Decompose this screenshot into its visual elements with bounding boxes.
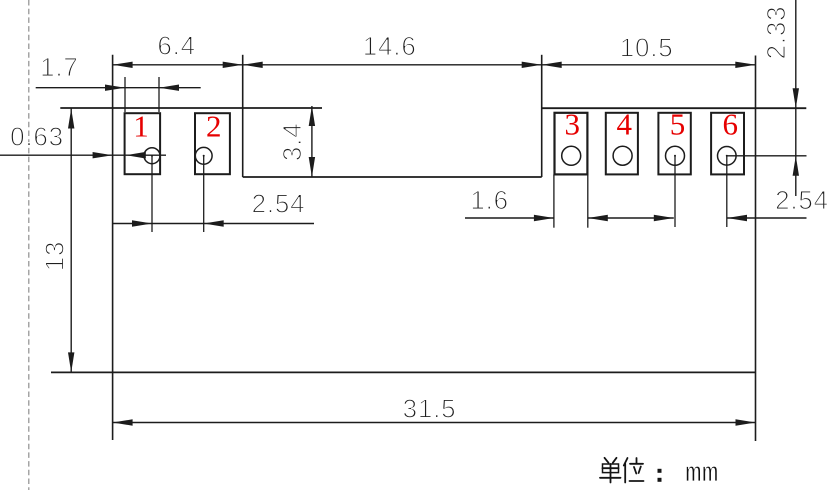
svg-text:4: 4 <box>616 107 632 142</box>
svg-text:13: 13 <box>40 241 70 272</box>
svg-text:14.6: 14.6 <box>363 31 417 61</box>
svg-text:2.54: 2.54 <box>252 189 306 219</box>
svg-text:2.54: 2.54 <box>775 185 829 215</box>
svg-text:2.33: 2.33 <box>761 6 791 60</box>
svg-text:3.4: 3.4 <box>277 123 307 162</box>
svg-text:10.5: 10.5 <box>620 33 674 63</box>
svg-text:0.63: 0.63 <box>10 122 64 152</box>
svg-text:2: 2 <box>206 109 222 144</box>
svg-text:6.4: 6.4 <box>157 31 196 61</box>
svg-text:31.5: 31.5 <box>403 394 457 424</box>
svg-text:3: 3 <box>565 107 581 142</box>
svg-text:1.7: 1.7 <box>40 52 79 82</box>
svg-text:5: 5 <box>670 107 686 142</box>
svg-text:mm: mm <box>685 459 719 490</box>
svg-text:6: 6 <box>722 107 738 142</box>
svg-text:1: 1 <box>133 109 149 144</box>
svg-text:1.6: 1.6 <box>470 185 509 215</box>
